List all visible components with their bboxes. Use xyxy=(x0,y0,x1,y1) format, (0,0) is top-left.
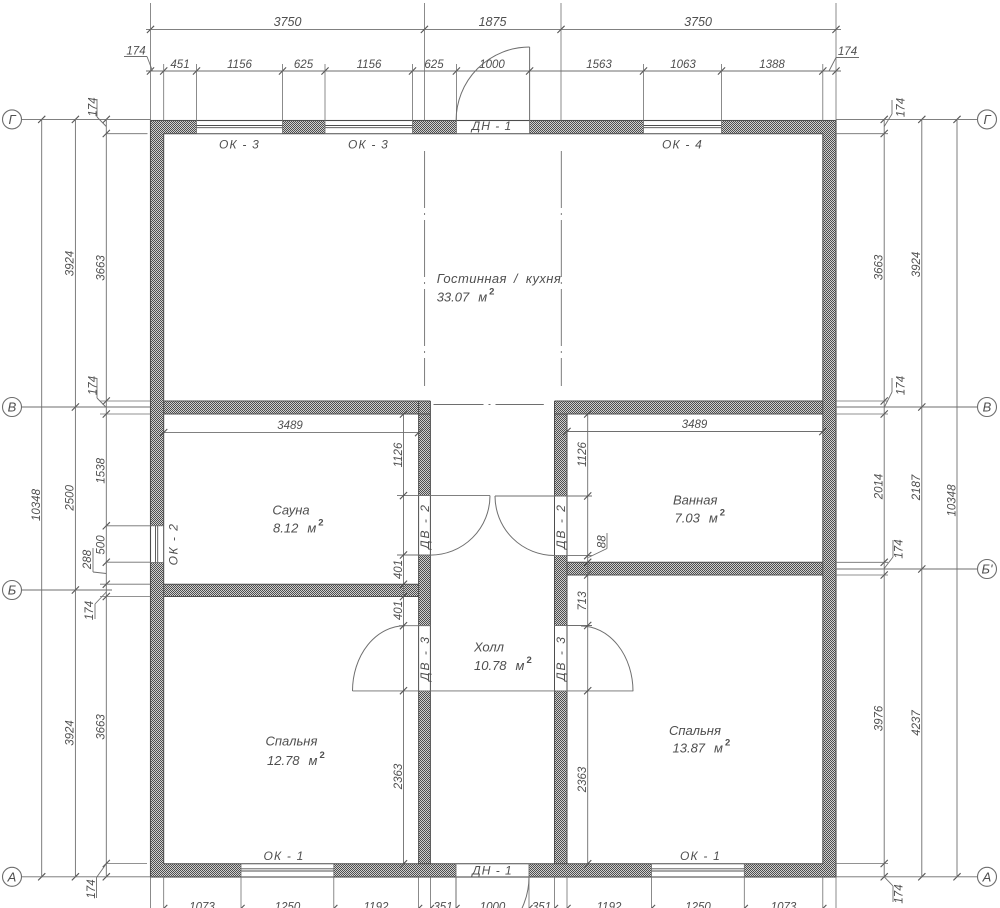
svg-text:Гостинная/кухня: Гостинная/кухня xyxy=(437,271,561,286)
svg-text:1192: 1192 xyxy=(597,902,622,908)
svg-text:713: 713 xyxy=(577,591,589,611)
svg-text:ДН - 1: ДН - 1 xyxy=(470,864,512,878)
svg-text:174: 174 xyxy=(126,46,145,58)
svg-text:1126: 1126 xyxy=(393,442,405,467)
svg-text:174: 174 xyxy=(88,376,100,395)
svg-text:1875: 1875 xyxy=(479,15,507,29)
svg-text:ОК - 1: ОК - 1 xyxy=(264,849,305,863)
svg-text:3489: 3489 xyxy=(277,420,303,432)
svg-text:401: 401 xyxy=(393,601,405,620)
svg-text:ОК - 3: ОК - 3 xyxy=(219,138,260,152)
svg-text:401: 401 xyxy=(393,560,405,579)
svg-text:1000: 1000 xyxy=(479,59,505,71)
svg-text:3976: 3976 xyxy=(874,705,886,731)
svg-text:Г: Г xyxy=(983,112,991,127)
svg-text:ДВ - 2: ДВ - 2 xyxy=(554,503,568,551)
svg-text:174: 174 xyxy=(896,376,908,395)
svg-text:625: 625 xyxy=(294,59,314,71)
svg-text:Сауна: Сауна xyxy=(272,503,309,518)
svg-text:12.78м2: 12.78м2 xyxy=(267,750,325,768)
svg-text:ОК - 4: ОК - 4 xyxy=(662,138,703,152)
svg-text:ОК - 3: ОК - 3 xyxy=(348,138,389,152)
svg-text:451: 451 xyxy=(170,59,189,71)
svg-text:1073: 1073 xyxy=(189,902,215,908)
svg-text:ДВ - 3: ДВ - 3 xyxy=(554,635,568,683)
svg-text:13.87м2: 13.87м2 xyxy=(673,738,731,756)
svg-text:3750: 3750 xyxy=(274,15,302,29)
svg-text:2363: 2363 xyxy=(577,766,589,793)
svg-text:Холл: Холл xyxy=(473,640,505,655)
svg-text:1563: 1563 xyxy=(586,59,612,71)
svg-text:ОК - 2: ОК - 2 xyxy=(167,523,181,566)
svg-text:А: А xyxy=(7,869,17,884)
svg-text:3924: 3924 xyxy=(911,252,923,278)
svg-text:1156: 1156 xyxy=(227,59,252,71)
svg-text:4237: 4237 xyxy=(911,710,923,736)
svg-text:3750: 3750 xyxy=(684,15,712,29)
svg-text:2500: 2500 xyxy=(65,484,77,511)
svg-text:174: 174 xyxy=(894,539,906,558)
svg-text:1388: 1388 xyxy=(759,59,785,71)
svg-text:174: 174 xyxy=(84,601,96,620)
svg-text:В: В xyxy=(983,400,992,415)
svg-text:3489: 3489 xyxy=(682,419,708,431)
svg-text:Б': Б' xyxy=(982,562,993,577)
svg-text:8.12м2: 8.12м2 xyxy=(273,518,324,536)
svg-text:3663: 3663 xyxy=(96,255,108,281)
svg-text:2187: 2187 xyxy=(911,474,923,501)
svg-text:288: 288 xyxy=(82,549,94,570)
svg-text:ДВ - 3: ДВ - 3 xyxy=(418,635,432,683)
svg-text:10348: 10348 xyxy=(946,484,958,517)
svg-text:174: 174 xyxy=(896,98,908,117)
svg-text:1063: 1063 xyxy=(670,59,696,71)
svg-text:174: 174 xyxy=(838,46,857,58)
svg-text:Ванная: Ванная xyxy=(673,493,717,508)
svg-text:174: 174 xyxy=(894,884,906,903)
svg-text:3663: 3663 xyxy=(874,254,886,280)
svg-text:1000: 1000 xyxy=(480,902,506,908)
svg-text:2363: 2363 xyxy=(393,763,405,790)
svg-text:351: 351 xyxy=(433,902,452,908)
svg-text:1250: 1250 xyxy=(685,902,711,908)
svg-text:351: 351 xyxy=(532,902,551,908)
svg-text:Спальня: Спальня xyxy=(669,723,721,738)
svg-text:3924: 3924 xyxy=(65,251,77,277)
svg-text:500: 500 xyxy=(96,535,108,555)
svg-text:10348: 10348 xyxy=(31,488,43,521)
svg-text:33.07м2: 33.07м2 xyxy=(437,287,495,305)
svg-text:ОК - 1: ОК - 1 xyxy=(680,849,721,863)
svg-text:Б: Б xyxy=(8,583,17,598)
svg-text:3924: 3924 xyxy=(65,720,77,746)
svg-text:1538: 1538 xyxy=(96,457,108,483)
svg-text:ДН - 1: ДН - 1 xyxy=(470,119,512,133)
svg-text:Г: Г xyxy=(8,112,16,127)
svg-text:7.03м2: 7.03м2 xyxy=(675,508,726,526)
svg-text:ДВ - 2: ДВ - 2 xyxy=(418,503,432,551)
svg-text:В: В xyxy=(8,400,17,415)
svg-text:1073: 1073 xyxy=(771,902,797,908)
svg-text:А: А xyxy=(982,869,992,884)
svg-text:1250: 1250 xyxy=(275,902,301,908)
svg-text:2014: 2014 xyxy=(874,474,886,501)
svg-text:1192: 1192 xyxy=(364,902,389,908)
svg-text:1156: 1156 xyxy=(357,59,382,71)
svg-text:3663: 3663 xyxy=(96,714,108,740)
svg-text:Спальня: Спальня xyxy=(266,734,318,749)
svg-text:174: 174 xyxy=(88,97,100,116)
svg-text:625: 625 xyxy=(424,59,444,71)
svg-text:10.78м2: 10.78м2 xyxy=(474,655,532,673)
svg-text:1126: 1126 xyxy=(577,442,589,467)
